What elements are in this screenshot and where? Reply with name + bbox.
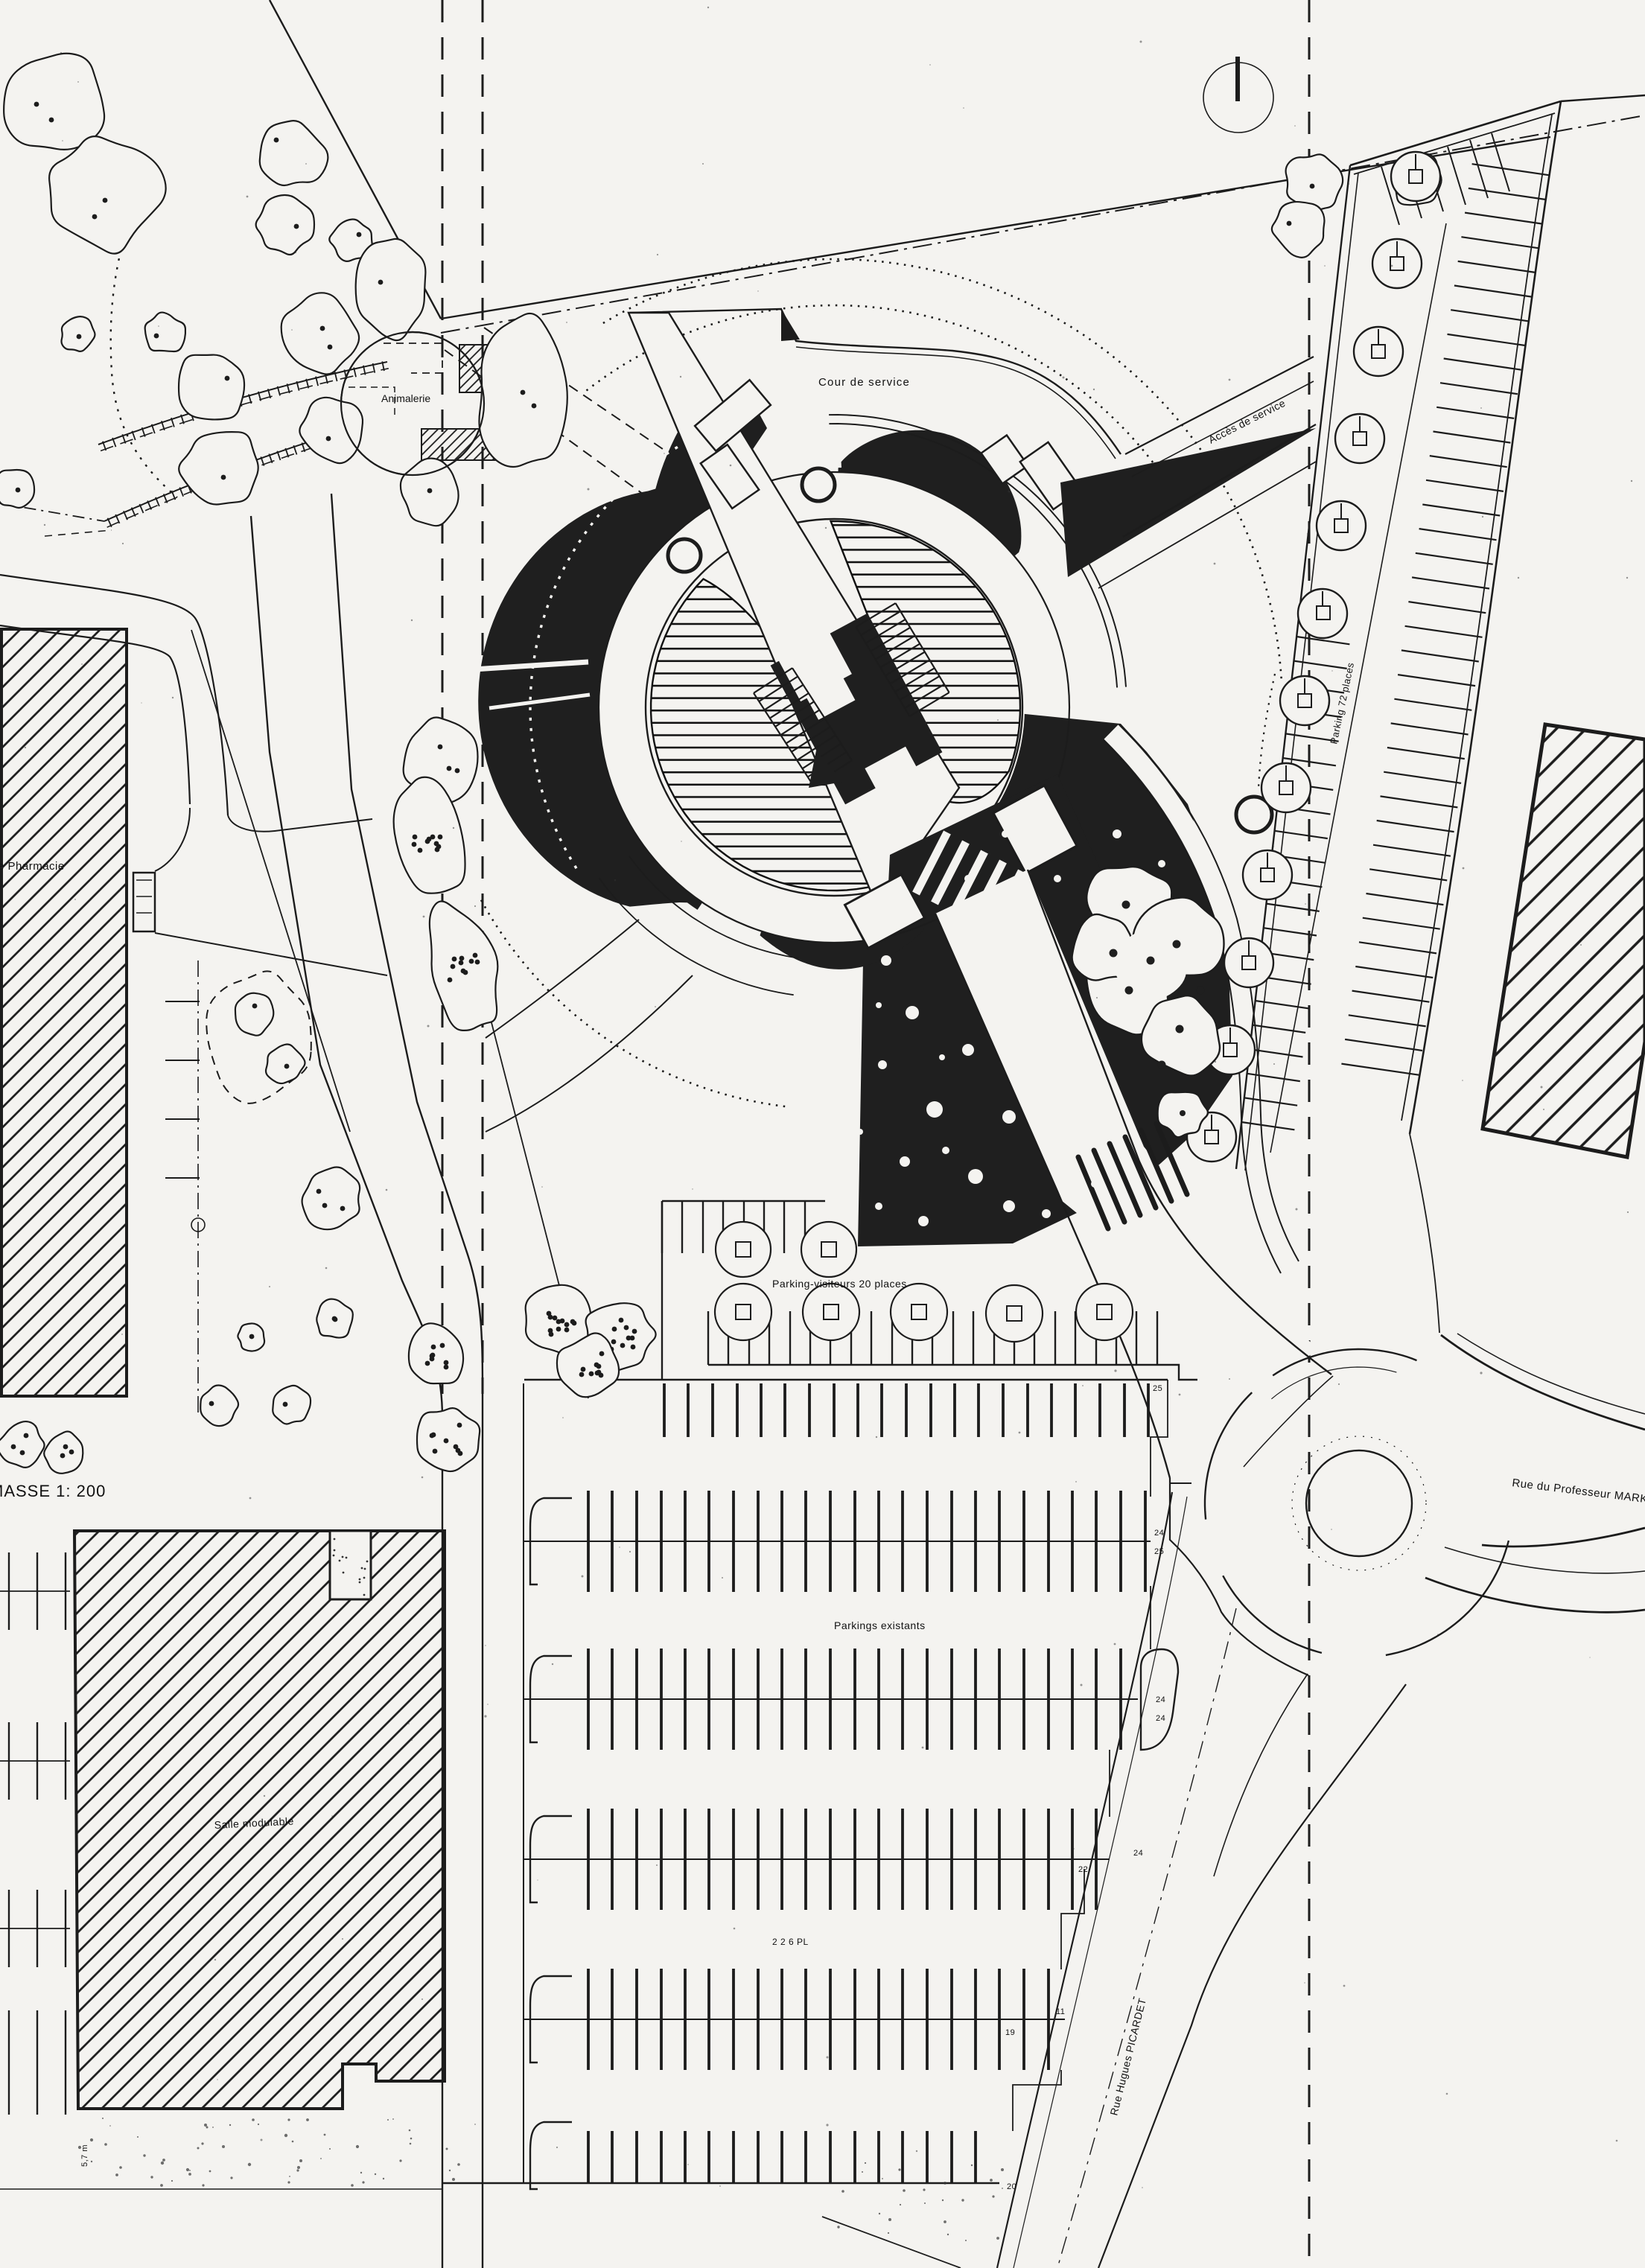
svg-text:et de Pharmacie: et de Pharmacie bbox=[0, 860, 65, 873]
svg-text:19: 19 bbox=[1005, 2028, 1015, 2037]
svg-text:MASSE 1: 200: MASSE 1: 200 bbox=[0, 1482, 106, 1500]
svg-text:24: 24 bbox=[1156, 1714, 1165, 1723]
svg-text:24: 24 bbox=[1133, 1849, 1143, 1858]
svg-text:Parkings existants: Parkings existants bbox=[834, 1619, 926, 1631]
svg-text:2 2 6 PL: 2 2 6 PL bbox=[772, 1937, 809, 1947]
svg-text:Cour de service: Cour de service bbox=[818, 376, 910, 389]
svg-text:25: 25 bbox=[1154, 1547, 1164, 1556]
svg-text:Animalerie: Animalerie bbox=[381, 392, 430, 404]
svg-text:20: 20 bbox=[1007, 2182, 1016, 2191]
svg-text:25: 25 bbox=[1153, 1384, 1162, 1393]
svg-text:11: 11 bbox=[1056, 2007, 1065, 2016]
svg-text:24: 24 bbox=[1156, 1695, 1165, 1704]
svg-text:Parking-visiteurs 20 places: Parking-visiteurs 20 places bbox=[772, 1278, 907, 1290]
svg-text:24: 24 bbox=[1154, 1529, 1164, 1538]
svg-text:5,7 m: 5,7 m bbox=[80, 2144, 89, 2167]
svg-text:22: 22 bbox=[1078, 1865, 1088, 1874]
